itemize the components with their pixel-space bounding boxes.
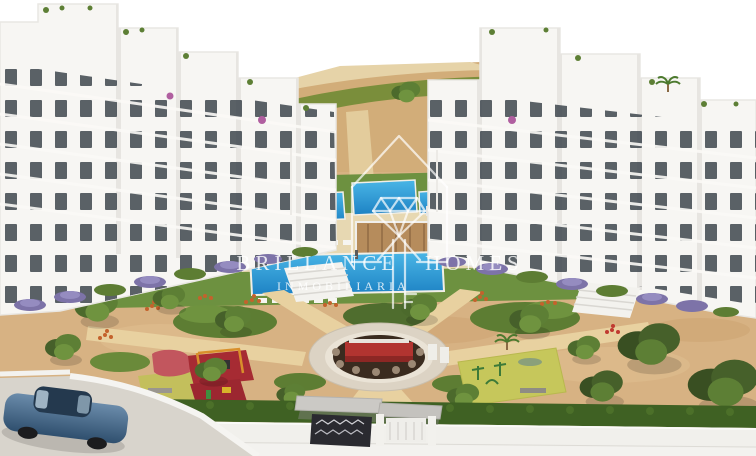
slide (152, 350, 190, 377)
stairs (284, 262, 354, 302)
scene-render (0, 0, 756, 456)
central-plaza (309, 323, 449, 391)
person (355, 250, 358, 259)
render-canvas: BRILLANCE HOMES INMOBILIARIA (0, 0, 756, 456)
red-seating-pavilion (345, 342, 413, 358)
